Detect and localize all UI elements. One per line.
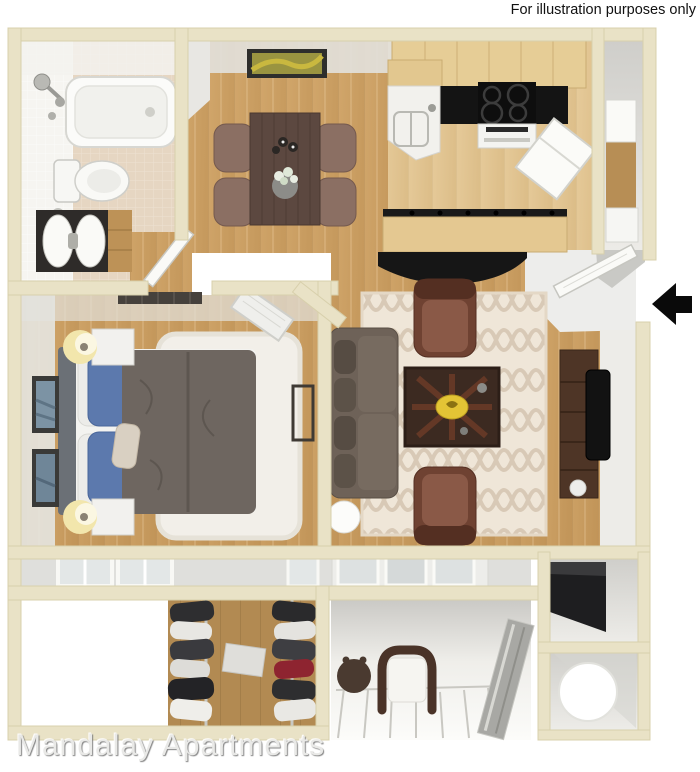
wall-top — [8, 28, 656, 41]
wall-laundry-left — [592, 28, 604, 254]
side-table — [328, 501, 360, 533]
armchair — [414, 467, 476, 545]
coffee-table — [405, 368, 499, 446]
decor-object-icon — [570, 480, 586, 496]
floor-plan-image — [0, 0, 700, 772]
wall-art-dining — [247, 49, 327, 78]
wall-outer-right-living — [636, 322, 650, 554]
table-lamp-icon — [63, 330, 97, 364]
sofa-back-cushion — [334, 416, 356, 450]
faucet-icon — [428, 104, 436, 112]
armchair — [414, 279, 476, 357]
dining-table — [250, 113, 320, 225]
sofa-back-cushion — [334, 454, 356, 488]
faucet-icon — [68, 233, 78, 249]
floor-plan-page: For illustration purposes only — [0, 0, 700, 772]
entry-arrow-icon — [652, 283, 692, 325]
sofa — [330, 328, 398, 498]
tv — [586, 370, 610, 460]
wall-bottom-living — [8, 546, 650, 559]
wall-bathroom-right — [175, 28, 188, 240]
dryer — [606, 208, 638, 242]
stove — [478, 82, 536, 148]
wall-utility-divider — [538, 642, 650, 653]
sofa-back-cushion — [334, 340, 356, 374]
decor-object-icon — [477, 383, 487, 393]
bathtub — [66, 77, 176, 147]
sofa-seat — [358, 414, 396, 490]
wall-bedroom-top — [8, 281, 148, 295]
laundry-floor-strip — [606, 140, 636, 210]
sofa-back-cushion — [334, 378, 356, 412]
table-lamp-icon — [63, 500, 97, 534]
bed — [58, 347, 256, 515]
wall-bedroom-right — [318, 281, 331, 553]
nightstand — [92, 329, 134, 365]
laundry-closet — [606, 100, 638, 242]
wall-left — [8, 28, 21, 740]
decor-object-icon — [460, 427, 468, 435]
wall-closet-patio-top — [8, 586, 550, 600]
sofa-seat — [358, 336, 396, 412]
nightstand — [92, 499, 134, 535]
brand-watermark: Mandalay Apartments — [16, 729, 325, 763]
closet-shelf — [222, 643, 266, 676]
washer — [606, 100, 636, 142]
wall-outer-right-top — [643, 28, 656, 260]
wall-closet-right — [316, 586, 329, 740]
headboard — [58, 347, 76, 515]
wall-utility-bottom — [538, 730, 650, 740]
bathroom-vanity — [36, 210, 132, 272]
